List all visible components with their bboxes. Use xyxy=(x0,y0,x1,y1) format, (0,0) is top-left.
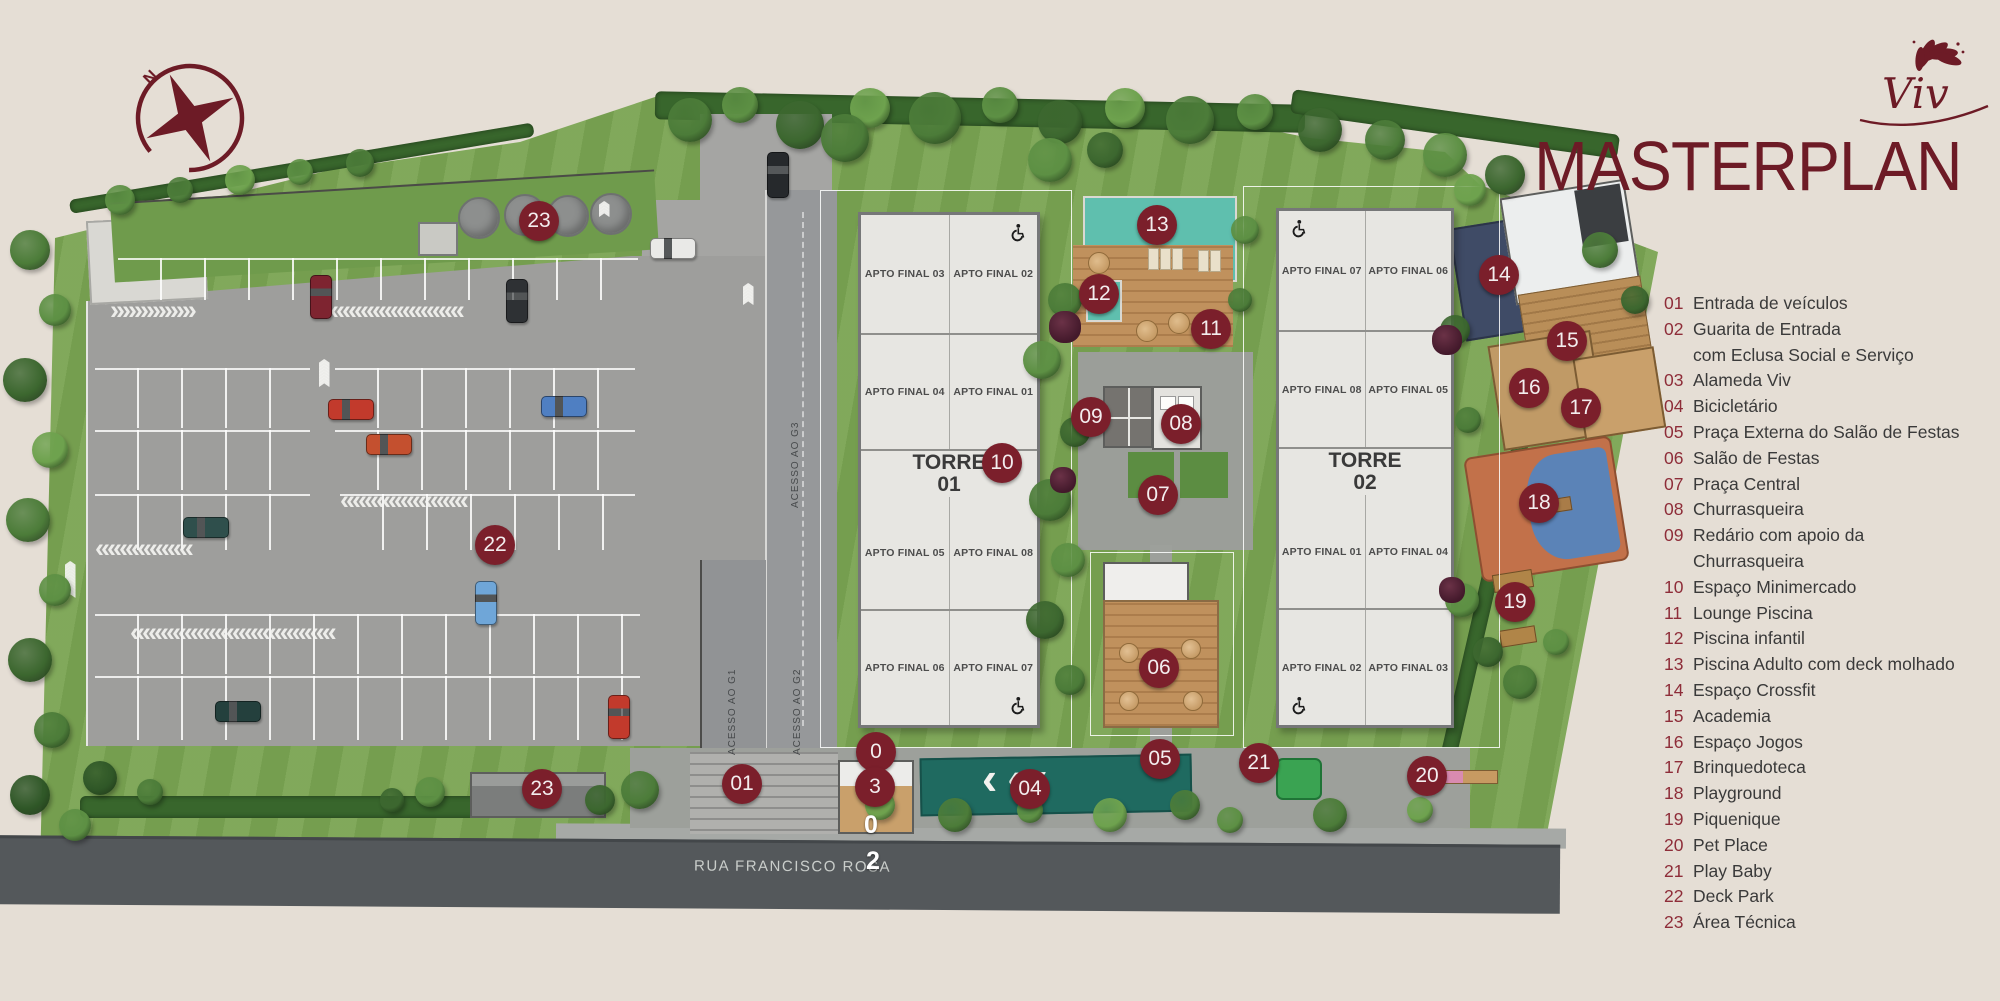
lane-direction-chevrons: ›››››››››››››› xyxy=(110,300,310,320)
tree xyxy=(1237,94,1273,130)
map-marker-11: 11 xyxy=(1191,309,1231,349)
page-title: MASTERPLAN xyxy=(1535,126,1962,206)
apartment-unit-label: APTO FINAL 06 xyxy=(1368,265,1448,277)
legend-item-label: Brinquedoteca xyxy=(1693,755,1806,781)
tower-name-text: TORRE xyxy=(1328,450,1401,472)
tree xyxy=(3,358,47,402)
tree xyxy=(59,809,91,841)
legend-item-label: Bicicletário xyxy=(1693,394,1778,420)
tree xyxy=(722,87,758,123)
legend-item: 06Salão de Festas xyxy=(1664,446,2000,472)
legend-item-label: Piquenique xyxy=(1693,807,1781,833)
legend-item-number: 08 xyxy=(1664,497,1693,523)
parked-car xyxy=(328,399,374,420)
central-garden-bed-2 xyxy=(1180,452,1228,498)
legend-item-number: 14 xyxy=(1664,678,1693,704)
tree xyxy=(1228,288,1252,312)
tree xyxy=(39,294,71,326)
parking-stalls xyxy=(95,430,310,490)
tree xyxy=(1365,120,1405,160)
legend-item-number: 17 xyxy=(1664,755,1693,781)
apartment-unit: APTO FINAL 06 xyxy=(861,611,950,725)
tree xyxy=(776,101,824,149)
map-marker-17: 17 xyxy=(1561,388,1601,428)
tree xyxy=(982,87,1018,123)
map-marker-13: 13 xyxy=(1137,205,1177,245)
map-marker-0: 0 xyxy=(856,732,896,772)
tree xyxy=(8,638,52,682)
parked-car xyxy=(541,396,587,417)
apartment-unit: APTO FINAL 08 xyxy=(1279,332,1366,447)
apartment-unit-label: APTO FINAL 02 xyxy=(953,268,1033,280)
hall-table xyxy=(1183,691,1203,711)
tree xyxy=(1231,216,1259,244)
map-marker-22: 22 xyxy=(475,525,515,565)
legend-item-number: 12 xyxy=(1664,626,1693,652)
apartment-unit: APTO FINAL 04 xyxy=(861,335,950,449)
pet-place-bench xyxy=(1440,770,1498,784)
tree xyxy=(1543,629,1569,655)
legend-item-label-line2: com Eclusa Social e Serviço xyxy=(1693,343,2000,369)
legend-item-label: Churrasqueira xyxy=(1693,497,1804,523)
legend-item: 10Espaço Minimercado xyxy=(1664,575,2000,601)
lane-direction-chevrons: ‹‹‹‹‹‹ xyxy=(740,282,760,378)
tree xyxy=(621,771,659,809)
legend-item-number: 11 xyxy=(1664,601,1693,627)
tree xyxy=(1455,407,1481,433)
lane-direction-chevrons: ‹‹‹‹ xyxy=(596,200,616,260)
tree xyxy=(105,185,135,215)
tower-unit-row: APTO FINAL 03APTO FINAL 02 xyxy=(861,215,1037,335)
legend-item-number: 05 xyxy=(1664,420,1693,446)
legend-item-number: 20 xyxy=(1664,833,1693,859)
tree xyxy=(1217,807,1243,833)
wheelchair-access-icon xyxy=(1289,696,1308,715)
apartment-unit: APTO FINAL 06 xyxy=(1366,211,1452,330)
tree xyxy=(137,779,163,805)
tree xyxy=(938,798,972,832)
straw-umbrella xyxy=(1136,320,1158,342)
logo-script-text: Viv xyxy=(1882,69,1949,118)
map-marker-19: 19 xyxy=(1495,582,1535,622)
flower-icon xyxy=(1913,37,1965,71)
parked-car xyxy=(650,238,696,259)
legend-item: 03Alameda Viv xyxy=(1664,368,2000,394)
legend-item-label: Deck Park xyxy=(1693,884,1774,910)
map-marker-10: 10 xyxy=(982,443,1022,483)
apartment-unit-label: APTO FINAL 01 xyxy=(1282,546,1362,558)
legend-item-number: 03 xyxy=(1664,368,1693,394)
legend-item-label: Lounge Piscina xyxy=(1693,601,1813,627)
tower-number-text: 01 xyxy=(937,474,960,496)
map-marker-3: 3 xyxy=(855,767,895,807)
tree xyxy=(1087,132,1123,168)
tree xyxy=(380,788,404,812)
hall-table xyxy=(1119,643,1139,663)
lane-direction-chevrons: ‹‹‹‹‹‹‹‹ xyxy=(316,358,336,488)
apartment-unit-label: APTO FINAL 07 xyxy=(1282,265,1362,277)
map-marker-16: 16 xyxy=(1509,368,1549,408)
map-marker-06: 06 xyxy=(1139,648,1179,688)
legend-item-label: Guarita de Entrada xyxy=(1693,317,1841,343)
apartment-unit-label: APTO FINAL 04 xyxy=(1368,546,1448,558)
pool-lounger xyxy=(1172,248,1183,270)
street-name: RUA FRANCISCO ROSA xyxy=(694,857,891,875)
hall-table xyxy=(1181,639,1201,659)
legend-item-label: Praça Central xyxy=(1693,472,1800,498)
apartment-unit: APTO FINAL 03 xyxy=(1366,610,1452,725)
access-road-label: ACESSO AO G2 xyxy=(792,655,803,755)
legend-item: 16Espaço Jogos xyxy=(1664,730,2000,756)
lane-direction-chevrons: ‹‹‹‹‹‹‹‹‹‹‹‹‹‹‹‹‹‹‹‹‹ xyxy=(340,490,640,510)
legend-item-label: Piscina infantil xyxy=(1693,626,1805,652)
wheelchair-access-icon xyxy=(1008,223,1027,242)
map-marker-15: 15 xyxy=(1547,321,1587,361)
tree xyxy=(1454,174,1486,206)
apartment-unit-label: APTO FINAL 01 xyxy=(953,386,1033,398)
tree xyxy=(585,785,615,815)
tree xyxy=(34,712,70,748)
wheelchair-access-icon xyxy=(1008,696,1027,715)
apartment-unit-label: APTO FINAL 05 xyxy=(1368,384,1448,396)
map-marker-04: 04 xyxy=(1010,769,1050,809)
legend-item: 02Guarita de Entrada xyxy=(1664,317,2000,343)
apartment-unit-label: APTO FINAL 02 xyxy=(1282,662,1362,674)
apartment-unit-label: APTO FINAL 04 xyxy=(865,386,945,398)
apartment-unit-label: APTO FINAL 06 xyxy=(865,662,945,674)
tree xyxy=(1028,138,1072,182)
tower-unit-row: APTO FINAL 01APTO FINAL 04 xyxy=(1279,495,1451,610)
pool-lounger xyxy=(1210,250,1221,272)
legend-item-number: 06 xyxy=(1664,446,1693,472)
legend-item-number: 07 xyxy=(1664,472,1693,498)
central-plaza xyxy=(1078,352,1253,550)
map-marker-07: 07 xyxy=(1138,475,1178,515)
apartment-unit-label: APTO FINAL 03 xyxy=(865,268,945,280)
legend-item-label: Pet Place xyxy=(1693,833,1768,859)
pool-lounger xyxy=(1198,250,1209,272)
tree xyxy=(287,159,313,185)
apartment-unit: APTO FINAL 05 xyxy=(861,497,950,609)
parked-car xyxy=(767,152,789,198)
pool-lounger xyxy=(1148,248,1159,270)
legend-item-number: 01 xyxy=(1664,291,1693,317)
legend-item-number: 23 xyxy=(1664,910,1693,936)
legend-item-label: Entrada de veículos xyxy=(1693,291,1848,317)
legend: 01Entrada de veículos02Guarita de Entrad… xyxy=(1664,291,2000,936)
parked-car xyxy=(475,581,497,625)
legend-item-number: 18 xyxy=(1664,781,1693,807)
legend-item: 05Praça Externa do Salão de Festas xyxy=(1664,420,2000,446)
tower-unit-row: APTO FINAL 07APTO FINAL 06 xyxy=(1279,211,1451,332)
map-marker-plain-2: 2 xyxy=(866,847,880,876)
brand-logo: Viv xyxy=(1830,28,1990,138)
legend-item: 01Entrada de veículos xyxy=(1664,291,2000,317)
tree xyxy=(346,149,374,177)
legend-item-number: 04 xyxy=(1664,394,1693,420)
apartment-unit: APTO FINAL 07 xyxy=(1279,211,1366,330)
legend-item: 13Piscina Adulto com deck molhado xyxy=(1664,652,2000,678)
legend-item-number: 10 xyxy=(1664,575,1693,601)
access-road-label: ACESSO AO G3 xyxy=(790,408,801,508)
legend-item-number: 19 xyxy=(1664,807,1693,833)
apartment-unit-label: APTO FINAL 07 xyxy=(953,662,1033,674)
legend-item-label: Área Técnica xyxy=(1693,910,1796,936)
tree xyxy=(1313,798,1347,832)
tree xyxy=(821,114,869,162)
apartment-unit-label: APTO FINAL 08 xyxy=(1282,384,1362,396)
compass-rose: N xyxy=(120,48,255,188)
legend-item-label: Playground xyxy=(1693,781,1782,807)
entrance-steps xyxy=(690,752,838,834)
lane-direction-chevrons: ‹‹‹‹‹‹‹‹‹‹‹‹‹‹‹‹ xyxy=(95,538,313,558)
parking-stalls xyxy=(118,258,638,300)
tower-name-text: TORRE xyxy=(912,452,985,474)
legend-item: 08Churrasqueira xyxy=(1664,497,2000,523)
legend-item-label: Praça Externa do Salão de Festas xyxy=(1693,420,1960,446)
legend-item-number: 22 xyxy=(1664,884,1693,910)
legend-item-label: Espaço Minimercado xyxy=(1693,575,1856,601)
map-marker-18: 18 xyxy=(1519,483,1559,523)
map-marker-01: 01 xyxy=(722,764,762,804)
tree xyxy=(10,775,50,815)
apartment-unit: APTO FINAL 07 xyxy=(950,611,1038,725)
tree xyxy=(1298,108,1342,152)
tree xyxy=(668,98,712,142)
legend-item-label: Academia xyxy=(1693,704,1771,730)
parked-car xyxy=(506,279,528,323)
map-marker-09: 09 xyxy=(1071,397,1111,437)
tower-02: APTO FINAL 07APTO FINAL 06APTO FINAL 08A… xyxy=(1276,208,1454,728)
compass-north-label: N xyxy=(139,66,161,88)
tree xyxy=(1473,637,1503,667)
ornamental-shrub xyxy=(1432,325,1462,355)
legend-item: 18Playground xyxy=(1664,781,2000,807)
tree xyxy=(1093,798,1127,832)
ornamental-shrub xyxy=(1049,311,1081,343)
tower-unit-row: APTO FINAL 05APTO FINAL 08 xyxy=(861,497,1037,611)
legend-item: 20Pet Place xyxy=(1664,833,2000,859)
ornamental-shrub xyxy=(1050,467,1076,493)
apartment-unit-label: APTO FINAL 03 xyxy=(1368,662,1448,674)
tree xyxy=(1485,155,1525,195)
parked-car xyxy=(215,701,261,722)
tree xyxy=(1166,96,1214,144)
legend-item-label: Alameda Viv xyxy=(1693,368,1791,394)
tree xyxy=(1170,790,1200,820)
tower-number-text: 02 xyxy=(1353,472,1376,494)
legend-item: 22Deck Park xyxy=(1664,884,2000,910)
legend-item: 15Academia xyxy=(1664,704,2000,730)
map-marker-20: 20 xyxy=(1407,756,1447,796)
legend-item: 19Piquenique xyxy=(1664,807,2000,833)
tree xyxy=(1105,88,1145,128)
lane-direction-chevrons: ‹‹‹‹‹‹‹‹‹‹‹‹‹‹‹‹‹‹‹‹‹‹ xyxy=(330,300,635,320)
legend-item-label: Espaço Crossfit xyxy=(1693,678,1816,704)
street: RUA FRANCISCO ROSA xyxy=(0,835,1560,914)
tower-unit-row: APTO FINAL 06APTO FINAL 07 xyxy=(861,611,1037,725)
tree xyxy=(6,498,50,542)
tree xyxy=(1055,665,1085,695)
apartment-unit: APTO FINAL 08 xyxy=(950,497,1038,609)
water-tank xyxy=(458,197,500,239)
legend-item-label: Salão de Festas xyxy=(1693,446,1819,472)
legend-item: 17Brinquedoteca xyxy=(1664,755,2000,781)
legend-item: 14Espaço Crossfit xyxy=(1664,678,2000,704)
tower-name: TORRE02 xyxy=(1279,449,1451,495)
tree xyxy=(1026,601,1064,639)
tree xyxy=(415,777,445,807)
pool-lounger xyxy=(1160,248,1171,270)
map-marker-21: 21 xyxy=(1239,743,1279,783)
apartment-unit-label: APTO FINAL 05 xyxy=(865,547,945,559)
technical-shed xyxy=(418,222,458,256)
parked-car xyxy=(310,275,332,319)
tree xyxy=(10,230,50,270)
legend-item: 21Play Baby xyxy=(1664,859,2000,885)
tree xyxy=(1582,232,1618,268)
legend-item-number: 13 xyxy=(1664,652,1693,678)
map-marker-14: 14 xyxy=(1479,255,1519,295)
tower-unit-row: APTO FINAL 04APTO FINAL 01 xyxy=(861,335,1037,451)
legend-item: 12Piscina infantil xyxy=(1664,626,2000,652)
legend-item-number: 15 xyxy=(1664,704,1693,730)
map-marker-plain-0: 0 xyxy=(864,811,878,840)
tree xyxy=(1023,341,1061,379)
legend-item-number: 09 xyxy=(1664,523,1693,549)
legend-item: 23Área Técnica xyxy=(1664,910,2000,936)
tree xyxy=(1038,100,1082,144)
legend-item-number: 21 xyxy=(1664,859,1693,885)
apartment-unit-label: APTO FINAL 08 xyxy=(953,547,1033,559)
access-road-label: ACESSO AO G1 xyxy=(727,655,738,755)
parking-stalls xyxy=(95,368,310,428)
hall-table xyxy=(1119,691,1139,711)
parked-car xyxy=(608,695,630,739)
legend-item: 04Bicicletário xyxy=(1664,394,2000,420)
tower-unit-row: APTO FINAL 02APTO FINAL 03 xyxy=(1279,610,1451,725)
apartment-unit: APTO FINAL 02 xyxy=(950,215,1038,333)
legend-item-label: Piscina Adulto com deck molhado xyxy=(1693,652,1955,678)
tree xyxy=(1621,286,1649,314)
wheelchair-access-icon xyxy=(1289,219,1308,238)
map-marker-23: 23 xyxy=(519,201,559,241)
legend-item-number: 16 xyxy=(1664,730,1693,756)
tree xyxy=(83,761,117,795)
pergola-line-2 xyxy=(1105,417,1151,419)
tree xyxy=(1503,665,1537,699)
map-marker-05: 05 xyxy=(1140,739,1180,779)
legend-item-label: Play Baby xyxy=(1693,859,1772,885)
apartment-unit: APTO FINAL 01 xyxy=(1279,495,1366,608)
legend-item-label: Redário com apoio da xyxy=(1693,523,1864,549)
masterplan-canvas: RUA FRANCISCO ROSA ‹‹‹ xyxy=(0,0,2000,1001)
map-marker-23: 23 xyxy=(522,769,562,809)
play-baby-toybox xyxy=(1276,758,1322,800)
legend-item-label: Espaço Jogos xyxy=(1693,730,1803,756)
parked-car xyxy=(183,517,229,538)
apartment-unit: APTO FINAL 03 xyxy=(861,215,950,333)
lane-direction-chevrons: ‹‹‹‹‹‹‹‹‹‹‹‹‹‹‹‹‹‹‹‹‹‹‹‹‹‹‹‹‹‹‹‹‹‹ xyxy=(130,622,600,642)
apartment-unit: APTO FINAL 02 xyxy=(1279,610,1366,725)
legend-item-label-line2: Churrasqueira xyxy=(1693,549,2000,575)
parking-stalls xyxy=(335,368,635,428)
straw-umbrella xyxy=(1088,252,1110,274)
tree xyxy=(1423,133,1467,177)
tower-unit-row: APTO FINAL 08APTO FINAL 05 xyxy=(1279,332,1451,449)
straw-umbrella xyxy=(1168,312,1190,334)
map-marker-12: 12 xyxy=(1079,274,1119,314)
legend-item: 11Lounge Piscina xyxy=(1664,601,2000,627)
legend-item: 07Praça Central xyxy=(1664,472,2000,498)
tree xyxy=(39,574,71,606)
parked-car xyxy=(366,434,412,455)
tree xyxy=(1051,543,1085,577)
legend-item: 09Redário com apoio da xyxy=(1664,523,2000,549)
ornamental-shrub xyxy=(1439,577,1465,603)
map-marker-08: 08 xyxy=(1161,404,1201,444)
parking-stalls xyxy=(95,676,640,740)
tree xyxy=(32,432,68,468)
tree xyxy=(1407,797,1433,823)
legend-item-number: 02 xyxy=(1664,317,1693,343)
tree xyxy=(909,92,961,144)
